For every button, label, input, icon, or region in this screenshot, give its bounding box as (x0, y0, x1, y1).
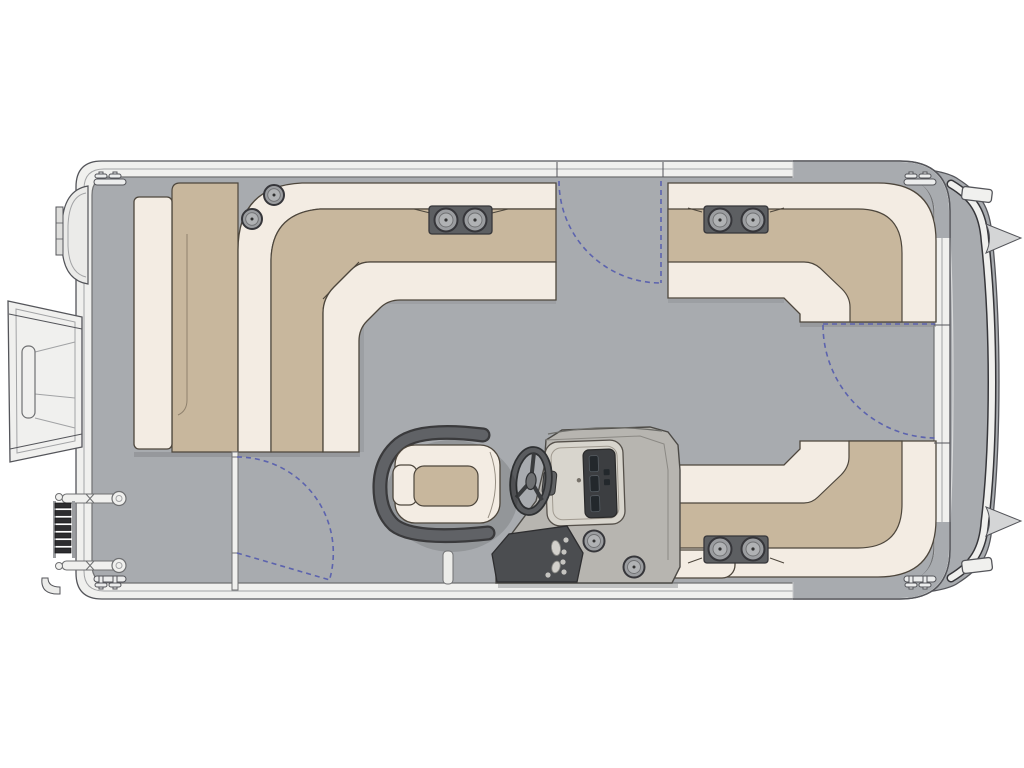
gate-partition-fence (232, 452, 238, 590)
cupholder-dot (718, 547, 721, 550)
gauge-slot (590, 476, 600, 492)
ski-pylon (443, 551, 453, 584)
cupholder-dot (751, 547, 754, 550)
dash-pod (545, 440, 626, 527)
switch-dot (545, 572, 550, 577)
console-shadow (498, 583, 678, 588)
ladder-hinge-bottom (56, 563, 63, 570)
cupholder-dot (718, 218, 721, 221)
bow-gangway (8, 301, 82, 462)
bow-left-seat-cushion (172, 183, 238, 452)
chair-seat-insert (414, 466, 478, 506)
nose-bracket (56, 207, 63, 255)
stern-step-top (961, 186, 992, 203)
gangway-handle (22, 346, 35, 418)
switch-dot (561, 549, 566, 554)
speaker-dot (251, 218, 254, 221)
bow-corner-trim-cap (42, 578, 60, 594)
gauge-slot (589, 456, 599, 472)
cupholder-dot (444, 218, 447, 221)
nose-cone (62, 186, 88, 284)
gauge-slot (590, 496, 600, 512)
ladder-rail-end-top (112, 492, 126, 506)
console-cupholder-dot (633, 566, 636, 569)
console-cupholder-dot (593, 540, 596, 543)
ladder-folded-steps (55, 503, 71, 553)
stern-step-bottom (961, 557, 992, 574)
bow-lounge-shadow-bottom (134, 452, 360, 457)
ladder-hinge-top (56, 494, 63, 501)
bow-left-back-cushion (134, 197, 172, 449)
pontoon-floor-plan (0, 0, 1024, 768)
stern-fin-bottom (986, 507, 1021, 536)
cupholder-dot (751, 218, 754, 221)
cupholder-dot (473, 218, 476, 221)
gauge-button (604, 479, 610, 485)
floor-plan-drawing (0, 0, 1024, 768)
ladder-rail-end-bottom (112, 559, 126, 573)
switch-dot (561, 569, 566, 574)
switch-dot (560, 559, 565, 564)
upper-lounge-shadow2 (668, 299, 784, 303)
stern-fin-top (986, 224, 1021, 253)
ladder-side-rail-right (72, 501, 75, 558)
gangway-frame (8, 301, 82, 462)
gauge-button (604, 469, 610, 475)
switch-dot (563, 537, 568, 542)
speaker-dot (273, 194, 276, 197)
